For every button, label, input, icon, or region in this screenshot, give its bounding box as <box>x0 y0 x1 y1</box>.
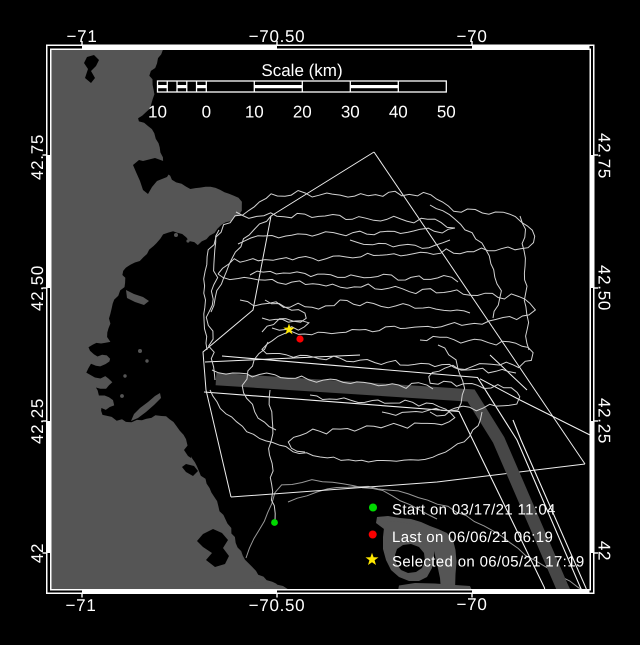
svg-text:42.50: 42.50 <box>28 265 47 311</box>
svg-text:42.50: 42.50 <box>595 265 614 311</box>
svg-text:10: 10 <box>148 103 167 122</box>
svg-text:Scale (km): Scale (km) <box>261 61 342 80</box>
svg-text:−70.50: −70.50 <box>249 27 306 46</box>
svg-text:30: 30 <box>341 103 360 122</box>
svg-text:−70: −70 <box>457 27 488 46</box>
svg-text:−70.50: −70.50 <box>249 596 306 615</box>
svg-text:−71: −71 <box>66 596 97 615</box>
svg-text:42: 42 <box>28 543 47 563</box>
svg-text:40: 40 <box>389 103 408 122</box>
svg-text:42.75: 42.75 <box>28 134 47 180</box>
svg-text:42.25: 42.25 <box>595 398 614 444</box>
svg-text:Last on 06/06/21 06:19: Last on 06/06/21 06:19 <box>392 529 553 546</box>
svg-text:42.25: 42.25 <box>28 398 47 444</box>
svg-text:50: 50 <box>437 103 456 122</box>
svg-text:42.75: 42.75 <box>595 133 614 179</box>
svg-text:−71: −71 <box>67 27 98 46</box>
svg-text:Selected on 06/05/21 17:19: Selected on 06/05/21 17:19 <box>392 554 585 571</box>
svg-text:−70: −70 <box>457 595 488 614</box>
svg-text:Start on 03/17/21 11:04: Start on 03/17/21 11:04 <box>392 502 556 519</box>
svg-text:42: 42 <box>595 541 614 561</box>
svg-text:20: 20 <box>293 103 312 122</box>
svg-text:10: 10 <box>245 103 264 122</box>
svg-text:0: 0 <box>202 103 211 122</box>
